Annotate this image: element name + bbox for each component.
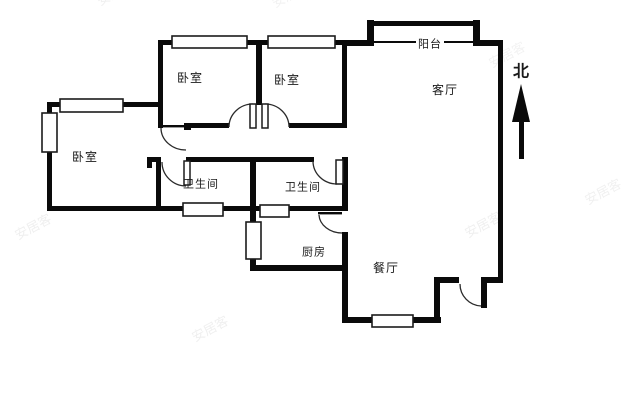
floor-plan-page: 安居客安居客安居客安居客安居客安居客安居客卧室卧室卧室卫生间卫生间厨房餐厅客厅阳… [0, 0, 640, 400]
wall-segment [434, 277, 440, 323]
window [172, 36, 247, 48]
room-label-bedroom-2: 卧室 [274, 72, 300, 87]
thin-door-line [318, 212, 342, 214]
room-label-bathroom-2: 卫生间 [285, 180, 321, 194]
room-label-kitchen: 厨房 [302, 246, 326, 259]
wall-segment [250, 265, 348, 271]
wall-segment [156, 157, 161, 211]
north-arrow-stem [519, 122, 524, 159]
wall-segment [184, 123, 191, 130]
thin-door-line [161, 125, 185, 127]
wall-segment [147, 157, 152, 168]
window [42, 113, 57, 152]
window [183, 203, 223, 216]
window [260, 205, 289, 217]
door-leaf [481, 283, 487, 308]
wall-segment [250, 158, 256, 210]
wall-segment [289, 123, 347, 128]
door-leaf [262, 104, 268, 128]
room-label-bedroom-3: 卧室 [72, 149, 98, 164]
door-leaf [250, 104, 256, 128]
room-label-dining-room: 餐厅 [373, 260, 399, 275]
room-label-bathroom-1: 卫生间 [183, 177, 219, 191]
room-label-balcony: 阳台 [418, 37, 442, 51]
wall-segment [256, 43, 262, 105]
window [60, 99, 123, 112]
window [268, 36, 335, 48]
north-label: 北 [513, 62, 529, 81]
door-leaf [336, 160, 343, 184]
wall-segment [434, 277, 459, 283]
wall-segment [186, 123, 229, 128]
wall-segment [498, 40, 503, 283]
floor-plan-svg: 安居客安居客安居客安居客安居客安居客安居客卧室卧室卧室卫生间卫生间厨房餐厅客厅阳… [0, 0, 640, 400]
wall-segment [370, 21, 478, 26]
room-label-living-room: 客厅 [432, 82, 458, 97]
wall-segment [342, 232, 348, 322]
canvas-background [0, 0, 640, 400]
wall-segment [342, 40, 347, 127]
window [372, 315, 413, 327]
window [246, 222, 261, 259]
wall-segment [158, 40, 163, 128]
room-label-bedroom-1: 卧室 [177, 70, 203, 85]
